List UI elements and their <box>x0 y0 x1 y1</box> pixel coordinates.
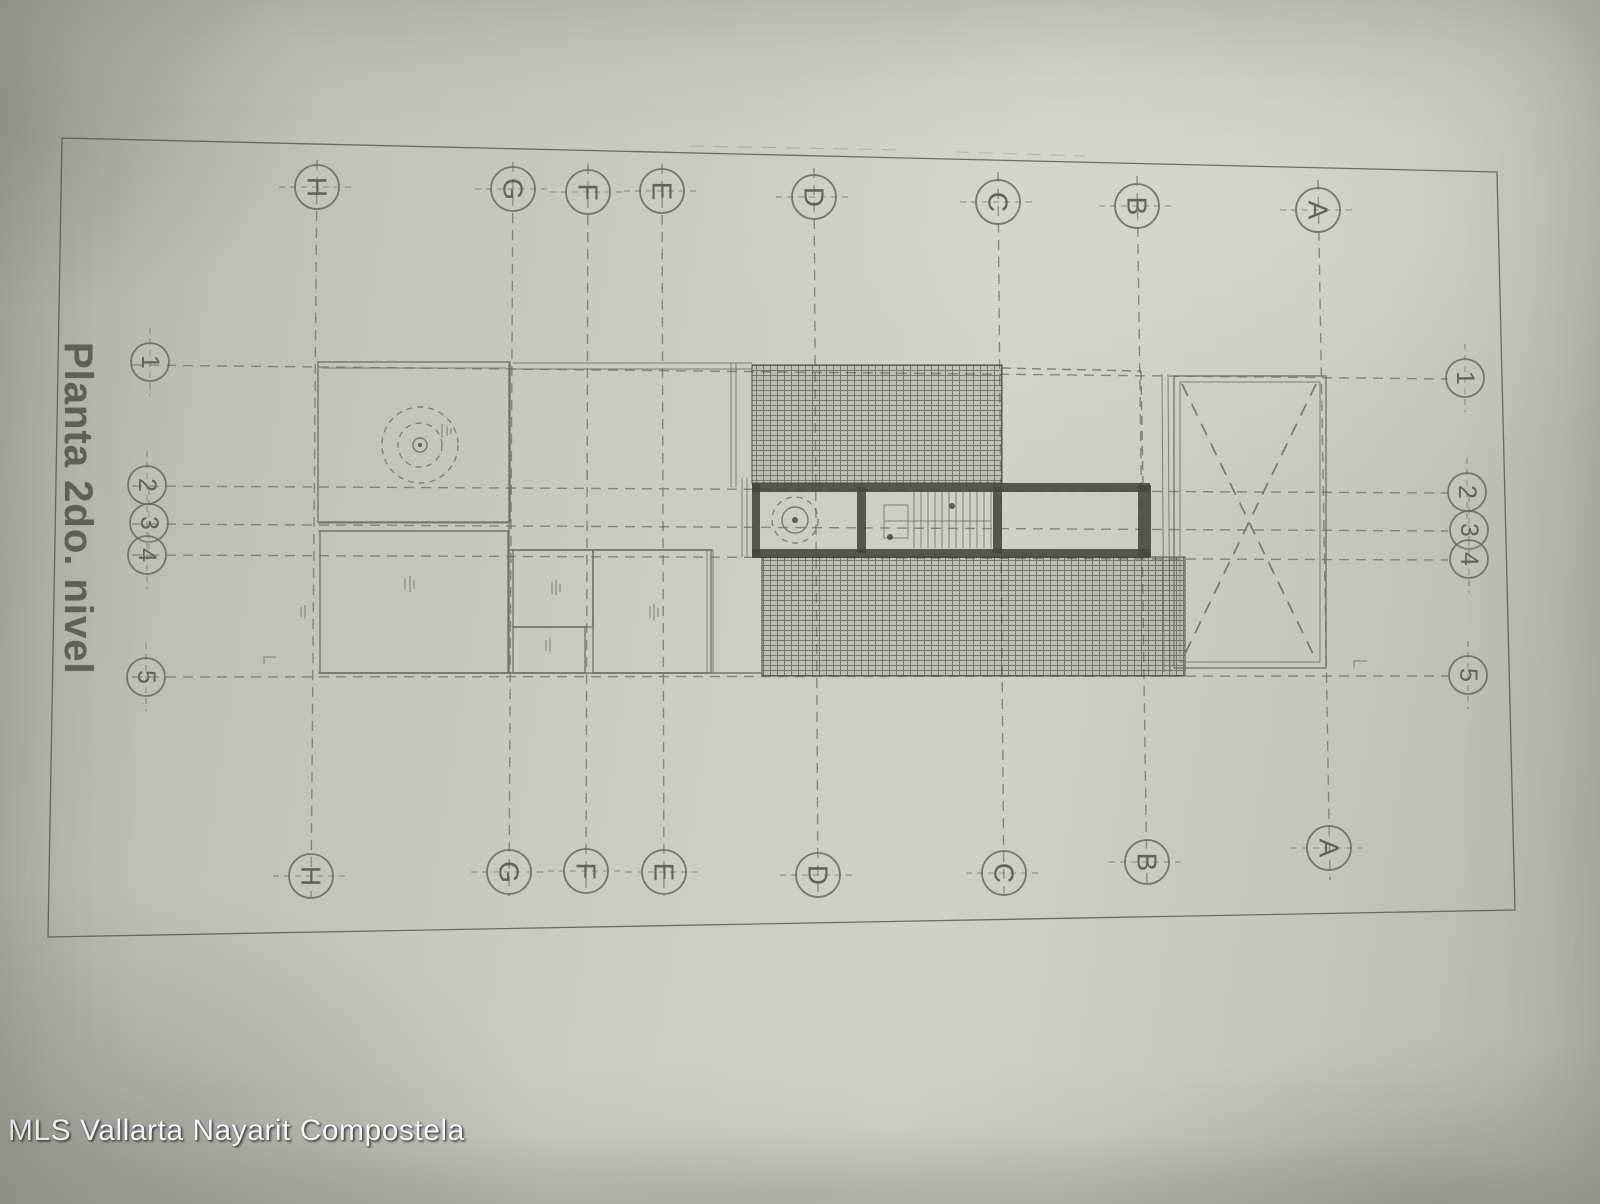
sheet-border <box>48 138 1515 937</box>
svg-text:5: 5 <box>132 670 160 684</box>
grid-line-F <box>586 164 588 895</box>
svg-text:A: A <box>1303 201 1334 220</box>
grid-bubble-bottom-e: E <box>626 850 702 894</box>
svg-text:D: D <box>799 187 830 207</box>
grid-bubble-top-a: A <box>1280 188 1356 232</box>
grid-bubble-top-d: D <box>776 175 852 219</box>
grid-bubble-bottom-c: C <box>966 851 1042 895</box>
svg-text:D: D <box>803 865 834 885</box>
photographed-floor-plan-sheet: Planta 2do. nivel <box>0 0 1600 1204</box>
grid-bubble-top-f: F <box>550 170 626 214</box>
small-room-2 <box>513 627 585 673</box>
svg-text:4: 4 <box>133 548 161 562</box>
void-x-area <box>1162 374 1367 672</box>
illegible-label <box>301 605 305 618</box>
corridor-fixture <box>772 497 818 543</box>
svg-text:2: 2 <box>133 478 161 492</box>
illegible-label <box>405 576 414 592</box>
stair-treads <box>914 492 991 548</box>
grid-bubble-top-g: G <box>475 167 551 211</box>
grid-bubble-top-b: B <box>1099 184 1175 228</box>
illegible-label <box>552 580 560 595</box>
svg-text:5: 5 <box>1454 668 1482 682</box>
corner-mark <box>264 657 276 664</box>
floor-plan-drawing: H G F E D C B A H G F E D C B A 1 2 3 4 … <box>0 0 1600 1204</box>
svg-text:F: F <box>571 862 602 879</box>
svg-text:G: G <box>498 178 529 200</box>
svg-text:2: 2 <box>1453 485 1481 499</box>
illegible-label <box>546 638 550 652</box>
svg-text:H: H <box>302 177 333 197</box>
svg-text:1: 1 <box>1451 371 1479 385</box>
rooms-middle <box>318 363 762 673</box>
grid-bubble-top-h: H <box>279 165 355 209</box>
svg-text:C: C <box>989 863 1020 883</box>
grid-bubble-bottom-f: F <box>548 849 624 893</box>
room-lower-left <box>264 362 509 673</box>
grid-bubbles-left: 1 2 3 4 5 <box>127 328 169 711</box>
svg-text:B: B <box>1132 853 1163 872</box>
room-upper-right <box>1002 368 1143 484</box>
grid-bubble-bottom-d: D <box>780 853 856 897</box>
svg-text:C: C <box>983 192 1014 212</box>
grid-bubble-left-5: 5 <box>127 643 165 711</box>
svg-text:4: 4 <box>1455 552 1483 566</box>
svg-text:1: 1 <box>136 355 164 369</box>
svg-text:H: H <box>296 866 327 886</box>
stair <box>884 492 991 548</box>
svg-text:B: B <box>1122 197 1153 216</box>
mls-watermark: MLS Vallarta Nayarit Compostela <box>8 1114 465 1148</box>
svg-text:3: 3 <box>135 516 163 530</box>
grid-bubble-right-5: 5 <box>1449 641 1487 709</box>
svg-text:G: G <box>494 861 525 883</box>
grid-bubble-bottom-a: A <box>1291 826 1367 870</box>
grid-bubble-right-1: 1 <box>1446 344 1484 412</box>
grid-bubble-bottom-g: G <box>471 850 547 894</box>
small-room-1 <box>513 550 593 627</box>
grid-bubbles-bottom: H G F E D C B A <box>273 826 1367 898</box>
svg-text:E: E <box>649 863 680 882</box>
grid-bubbles-right: 1 2 3 4 5 <box>1446 344 1488 709</box>
grid-bubble-top-e: E <box>624 169 700 213</box>
illegible-label <box>650 604 658 620</box>
grid-bubble-bottom-b: B <box>1109 840 1185 884</box>
grid-bubbles-top: H G F E D C B A <box>279 165 1356 232</box>
svg-text:A: A <box>1314 839 1345 858</box>
grid-line-E <box>662 164 664 896</box>
small-room-3 <box>593 550 711 673</box>
corner-mark <box>1354 661 1367 668</box>
tile-hatch-upper-pattern <box>752 365 1002 483</box>
room-spa <box>318 362 510 522</box>
grid-bubble-top-c: C <box>960 180 1036 224</box>
grid-line-H <box>311 160 317 898</box>
tile-hatch-lower-pattern <box>762 557 1185 676</box>
svg-text:E: E <box>647 182 678 201</box>
grid-bubble-left-1: 1 <box>131 328 169 396</box>
svg-text:F: F <box>573 183 604 200</box>
grid-bubble-bottom-h: H <box>273 854 349 898</box>
illegible-label <box>442 424 451 438</box>
